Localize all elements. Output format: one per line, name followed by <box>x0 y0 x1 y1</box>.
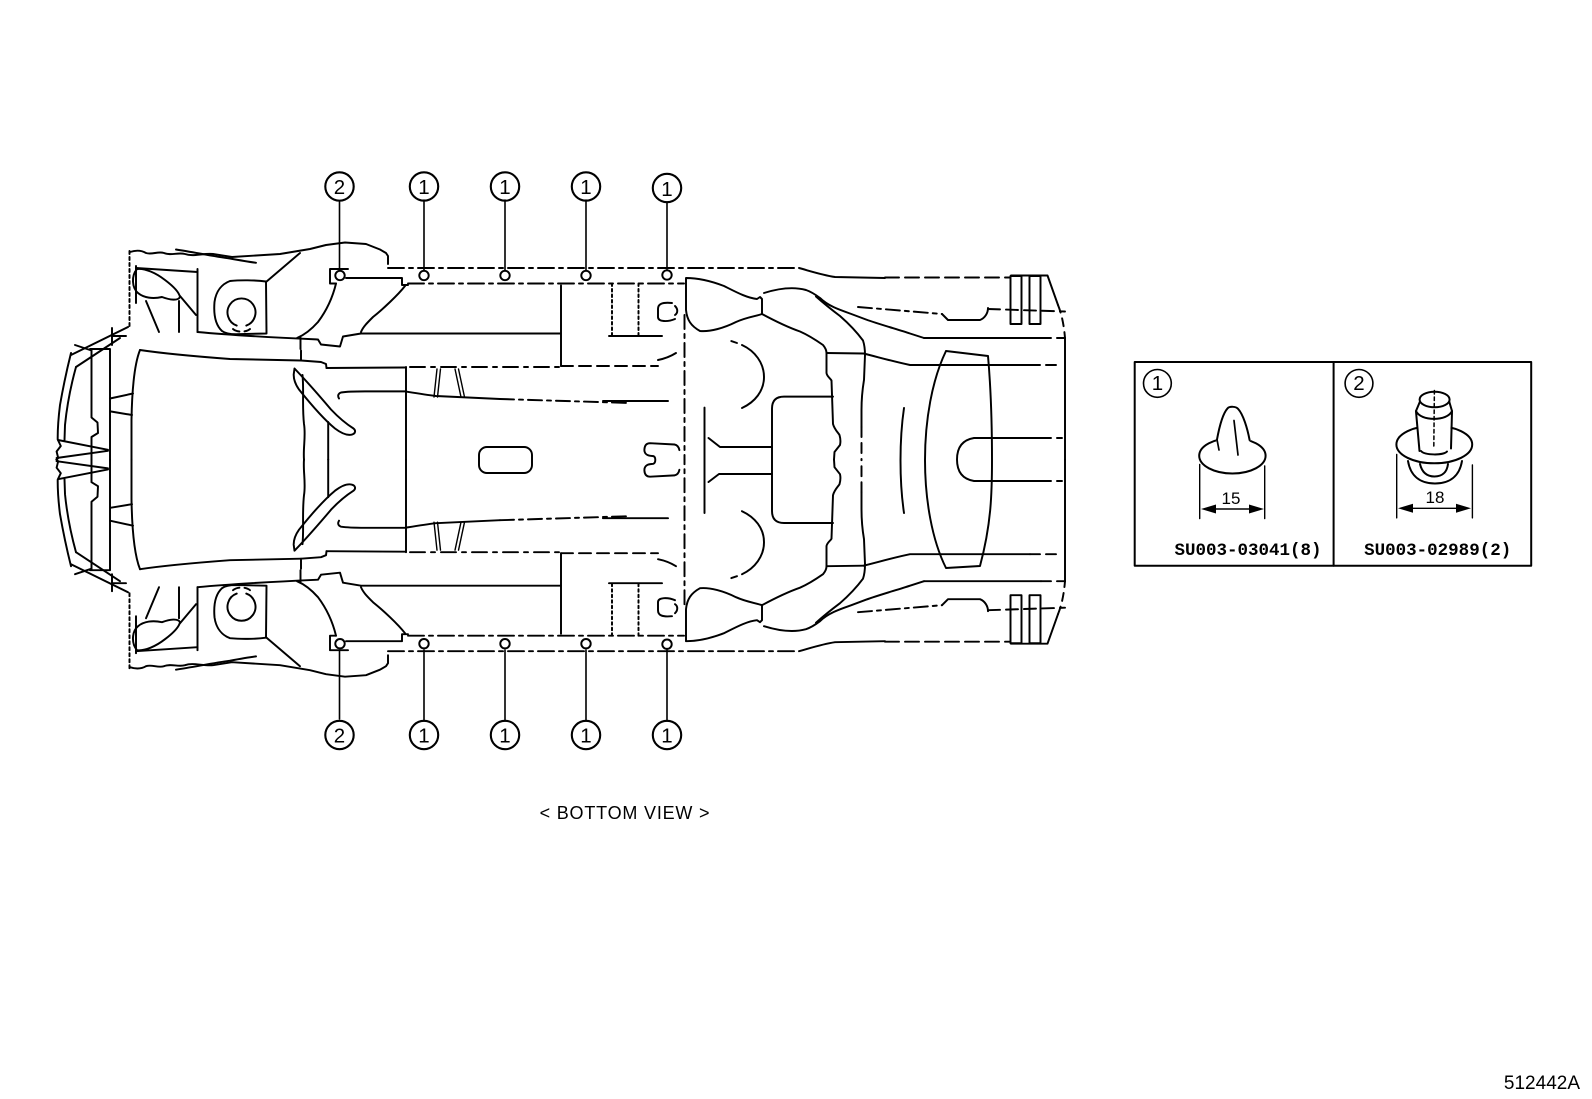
svg-text:1: 1 <box>499 176 510 199</box>
svg-text:SU003-03041(8): SU003-03041(8) <box>1174 541 1321 561</box>
svg-text:1: 1 <box>418 176 429 199</box>
svg-text:2: 2 <box>334 176 345 199</box>
svg-text:2: 2 <box>334 725 345 748</box>
svg-text:< BOTTOM VIEW >: < BOTTOM VIEW > <box>540 803 711 823</box>
svg-text:1: 1 <box>661 178 672 201</box>
svg-text:1: 1 <box>1152 372 1163 395</box>
svg-text:1: 1 <box>499 725 510 748</box>
svg-text:1: 1 <box>580 725 591 748</box>
svg-text:512442A: 512442A <box>1504 1073 1580 1094</box>
svg-text:2: 2 <box>1353 372 1364 395</box>
svg-text:1: 1 <box>661 725 672 748</box>
svg-text:1: 1 <box>418 725 429 748</box>
svg-text:15: 15 <box>1222 489 1241 508</box>
svg-text:1: 1 <box>580 176 591 199</box>
svg-text:18: 18 <box>1426 488 1445 507</box>
svg-text:SU003-02989(2): SU003-02989(2) <box>1364 541 1511 561</box>
